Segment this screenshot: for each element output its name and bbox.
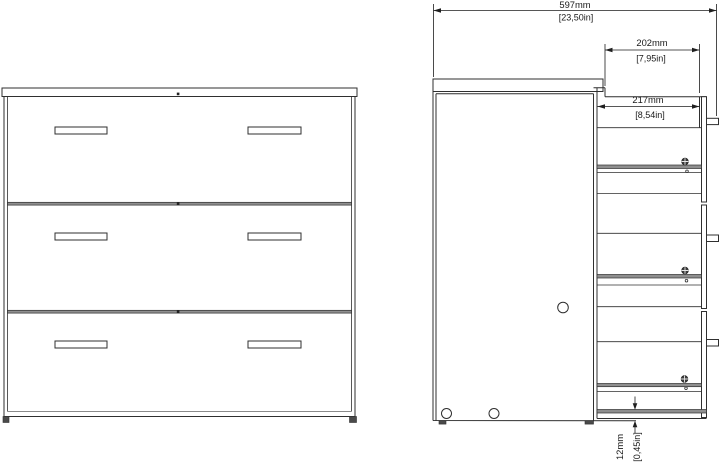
dim-bottom-clearance-in: [0,45in]	[632, 432, 642, 462]
dim-top-section-depth-mm: 202mm	[636, 37, 667, 48]
front-foot-left	[3, 417, 9, 423]
dim-top-section-depth-in: [7,95in]	[636, 54, 666, 64]
technical-drawing-page: 597mm [23,50in] 202mm [7,95in] 217mm [8,…	[0, 0, 720, 471]
rail-tab	[707, 118, 719, 124]
divider-center-mark	[177, 202, 180, 205]
drawer-section	[594, 88, 719, 419]
drawer-handle	[55, 341, 107, 348]
drawer-handle	[55, 233, 107, 240]
drawer-handle	[248, 127, 301, 134]
dim-top-section-depth: 202mm [7,95in]	[605, 37, 700, 93]
dim-drawer-section-depth-in: [8,54in]	[635, 110, 665, 120]
drawer-handle	[248, 341, 301, 348]
drawer-handle	[55, 127, 107, 134]
drawer-front-edge-3	[702, 312, 707, 418]
dim-arrow-down	[633, 403, 638, 410]
front-top-panel	[2, 88, 357, 97]
drawer-handle	[248, 233, 301, 240]
drawer-front-edge-1	[702, 97, 707, 202]
chest-dimension-diagram: 597mm [23,50in] 202mm [7,95in] 217mm [8,…	[0, 0, 720, 471]
drawer-2-handles	[55, 233, 301, 240]
drawer-bottom-panel	[597, 165, 702, 169]
dim-arrow-right	[692, 48, 700, 53]
side-foot-back	[439, 421, 446, 424]
dim-bottom-clearance-mm: 12mm	[614, 434, 625, 460]
dim-arrow-left	[605, 48, 613, 53]
side-top-panel	[433, 79, 603, 92]
dim-overall-width-mm: 597mm	[559, 0, 590, 10]
pilot-hole	[685, 279, 688, 282]
front-foot-right	[350, 417, 357, 423]
front-view	[2, 88, 357, 423]
pilot-hole	[685, 387, 688, 390]
rail-tab	[707, 340, 719, 347]
drawer-1-handles	[55, 127, 301, 134]
screw-icon	[681, 376, 688, 383]
rail-tab	[707, 235, 719, 242]
drawer-3-handles	[55, 341, 301, 348]
front-side-panel-edges	[8, 97, 352, 412]
front-body-outline	[4, 97, 355, 417]
dim-overall-width-in: [23,50in]	[559, 13, 594, 23]
drawer-bottom-panel	[597, 384, 702, 387]
screw-icon	[682, 158, 689, 165]
dim-arrow-right	[709, 8, 717, 13]
dim-drawer-section-depth-mm: 217mm	[632, 94, 663, 105]
dim-drawer-section-depth: 217mm [8,54in]	[598, 94, 700, 120]
bottom-hole	[442, 409, 452, 419]
dim-overall-width: 597mm [23,50in]	[434, 0, 717, 116]
side-panel-outline	[433, 92, 636, 421]
dim-arrow-left	[434, 8, 442, 13]
screw-icon	[682, 267, 689, 274]
side-foot-front	[585, 421, 594, 424]
base-band	[597, 410, 707, 414]
drawer-bottom-panel	[597, 275, 702, 279]
panel-center-mark	[177, 93, 180, 96]
drawer-divider-2	[8, 310, 352, 313]
cam-hole	[558, 302, 569, 313]
side-view	[433, 79, 719, 424]
divider-center-mark	[177, 310, 180, 313]
drawer-section-frame	[594, 88, 707, 419]
dim-arrow-left	[598, 104, 606, 109]
dim-arrow-up	[633, 421, 638, 428]
drawer-divider-1	[8, 202, 352, 205]
dim-arrow-right	[692, 104, 700, 109]
drawer-front-edge-2	[702, 205, 707, 309]
pilot-hole	[686, 170, 689, 173]
bottom-hole	[489, 409, 499, 419]
dim-bottom-clearance: 12mm [0,45in]	[614, 397, 642, 462]
